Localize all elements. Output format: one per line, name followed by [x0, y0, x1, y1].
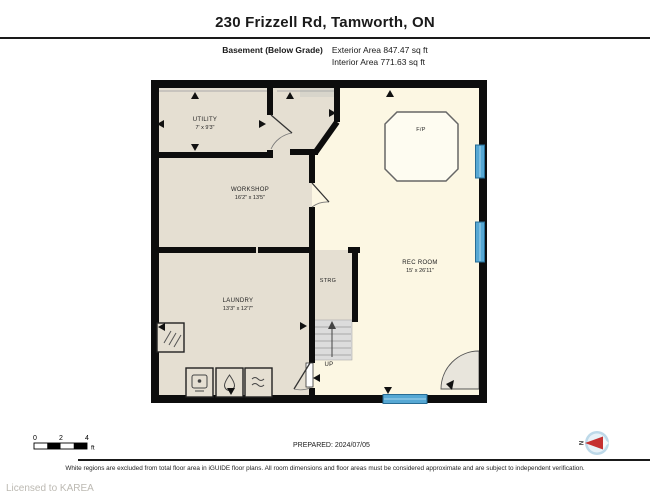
up-label: UP — [325, 362, 334, 368]
room-dims-laundry: 13'3" x 12'7" — [223, 306, 253, 312]
room-label-storage: STRG — [320, 278, 336, 284]
scale-bar: 0 2 4 ft — [33, 435, 95, 452]
room-label-laundry: LAUNDRY — [223, 298, 254, 304]
room-dims-recroom: 15' x 26'11" — [406, 268, 434, 274]
fireplace-label: F/P — [416, 127, 425, 133]
prepared-date: PREPARED: 2024/07/05 — [293, 442, 370, 449]
room-label-recroom: REC ROOM — [402, 260, 437, 266]
water-heater-box — [216, 368, 243, 397]
footer-divider — [78, 459, 650, 461]
scale-tick-4: 4 — [85, 435, 89, 442]
license-text: Licensed to KAREA — [6, 483, 94, 494]
fireplace — [385, 112, 458, 181]
scale-tick-2: 2 — [59, 435, 63, 442]
room-dims-utility: 7' x 9'3" — [195, 125, 214, 131]
room-dims-workshop: 16'2" x 13'5" — [235, 195, 265, 201]
scale-unit: ft — [91, 445, 95, 452]
washer-box — [245, 368, 272, 397]
stairs — [313, 320, 352, 360]
disclaimer-text: White regions are excluded from total fl… — [0, 465, 650, 472]
scale-tick-0: 0 — [33, 435, 37, 442]
floor-plan: UTILITY 7' x 9'3" WORKSHOP 16'2" x 13'5"… — [0, 0, 650, 502]
north-label: N — [580, 441, 586, 445]
room-label-utility: UTILITY — [193, 117, 217, 123]
storage-floor — [312, 250, 358, 322]
wall-post — [250, 247, 256, 253]
room-label-workshop: WORKSHOP — [231, 187, 269, 193]
compass: N — [580, 431, 610, 455]
duct-band — [300, 88, 336, 97]
